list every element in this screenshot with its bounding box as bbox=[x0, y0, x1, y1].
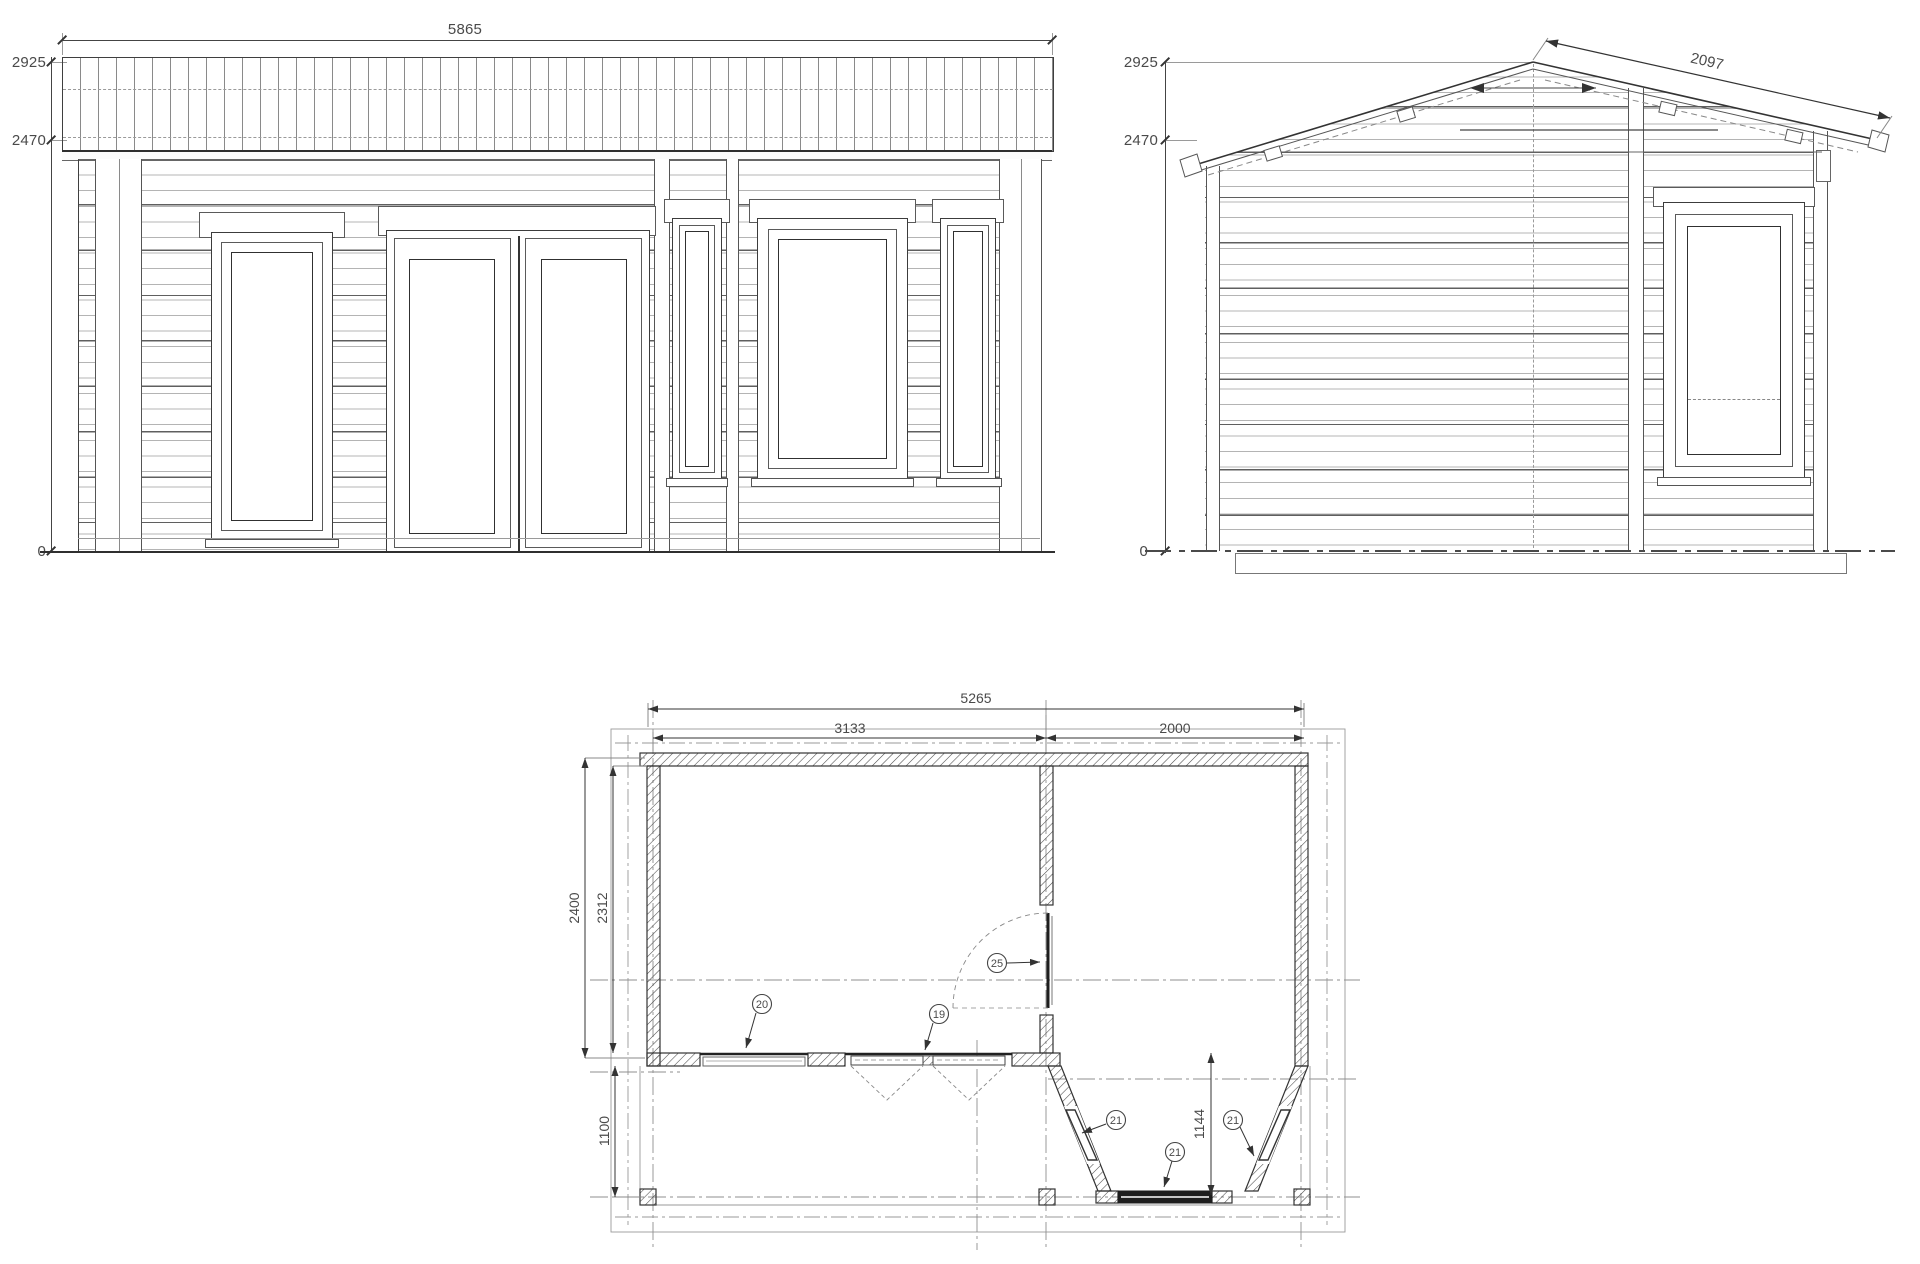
side-ground-line bbox=[1145, 550, 1895, 552]
callout-20: 20 bbox=[756, 999, 768, 1011]
side-window bbox=[1663, 202, 1805, 479]
deck-post bbox=[640, 1189, 656, 1205]
front-window-narrow-right bbox=[940, 218, 996, 480]
window-mid-rail bbox=[1688, 399, 1780, 400]
plan-overall-depth-label: 2400 bbox=[566, 892, 582, 923]
eave-end-cap bbox=[1180, 154, 1202, 177]
wall-bottom-seg bbox=[1012, 1053, 1060, 1066]
drawing-sheet: 5865 2925 2470 0 bbox=[0, 0, 1920, 1264]
front-roof-band bbox=[62, 57, 1054, 152]
front-left-dim-line bbox=[51, 57, 52, 553]
floor-plan-view: 5265 3133 2000 2400 2312 1100 1144 20 19… bbox=[560, 680, 1400, 1264]
front-window-large bbox=[757, 218, 908, 480]
callout-21-right: 21 bbox=[1227, 1115, 1239, 1127]
window-sill bbox=[936, 478, 1002, 487]
plan-veranda-width-label: 2000 bbox=[1159, 720, 1190, 736]
roof-bracket bbox=[1659, 101, 1677, 115]
wall-partition-lower bbox=[1040, 1015, 1053, 1053]
front-ground-line bbox=[40, 551, 1055, 553]
side-base-skirt bbox=[1235, 553, 1847, 574]
wall-right bbox=[1295, 766, 1308, 1066]
callout-21-front: 21 bbox=[1169, 1147, 1181, 1159]
wall-bottom-seg bbox=[647, 1053, 700, 1066]
wall-bottom-seg bbox=[808, 1053, 845, 1066]
side-roof-svg: 2097 bbox=[1100, 28, 1920, 198]
roof-bracket bbox=[1264, 146, 1283, 161]
roof-slope-length-label: 2097 bbox=[1689, 50, 1725, 74]
front-skirt-line bbox=[78, 538, 1040, 539]
plan-window-19 bbox=[845, 1054, 1012, 1100]
side-roof bbox=[1180, 62, 1889, 177]
plan-walls bbox=[640, 753, 1310, 1205]
wall-partition-upper bbox=[1040, 766, 1053, 905]
plan-terrace-depth-label: 1100 bbox=[596, 1116, 612, 1146]
window-sill bbox=[666, 478, 728, 487]
plan-overall-width-label: 5265 bbox=[960, 690, 991, 706]
wall-top bbox=[640, 753, 1308, 766]
window-sill bbox=[1657, 477, 1811, 486]
plan-room-depth-label: 2312 bbox=[594, 892, 610, 923]
front-window-narrow-left bbox=[672, 218, 722, 480]
corner-trim-right bbox=[999, 159, 1042, 551]
eave-end-cap bbox=[1868, 130, 1889, 152]
corner-trim-left bbox=[95, 159, 142, 551]
plan-room-width-label: 3133 bbox=[834, 720, 865, 736]
roof-purlin-line bbox=[63, 89, 1053, 90]
callout-21-left: 21 bbox=[1110, 1115, 1122, 1127]
callout-25: 25 bbox=[991, 958, 1003, 970]
plan-window-20 bbox=[700, 1054, 808, 1066]
plan-bay-depth-label: 1144 bbox=[1191, 1109, 1207, 1139]
bay-front-window bbox=[1118, 1191, 1212, 1203]
front-top-dim-line bbox=[62, 40, 1052, 41]
front-eave-height-label: 2470 bbox=[4, 132, 46, 149]
door-leaf-left-panel bbox=[409, 259, 495, 534]
window-sill bbox=[205, 539, 339, 548]
window-sill bbox=[751, 478, 914, 487]
front-ridge-height-label: 2925 bbox=[4, 54, 46, 71]
deck-post bbox=[1294, 1189, 1310, 1205]
plan-boundary bbox=[611, 729, 1345, 1232]
plan-centerlines bbox=[590, 700, 1360, 1250]
bay-front-stub bbox=[1212, 1191, 1232, 1203]
callout-19: 19 bbox=[933, 1009, 945, 1021]
roof-bracket bbox=[1785, 129, 1803, 143]
front-window-tall bbox=[211, 232, 333, 541]
side-corner-trim-left bbox=[1206, 166, 1220, 551]
door-leaf-right-panel bbox=[541, 259, 627, 534]
front-width-label: 5865 bbox=[430, 21, 500, 38]
door-mullion bbox=[518, 236, 520, 552]
front-elevation-view: 5865 2925 2470 0 bbox=[0, 0, 1100, 600]
bay-front-stub bbox=[1096, 1191, 1118, 1203]
deck-post bbox=[1039, 1189, 1055, 1205]
wall-left bbox=[647, 766, 660, 1066]
roof-purlin-line bbox=[63, 137, 1053, 138]
front-double-door bbox=[386, 230, 650, 553]
